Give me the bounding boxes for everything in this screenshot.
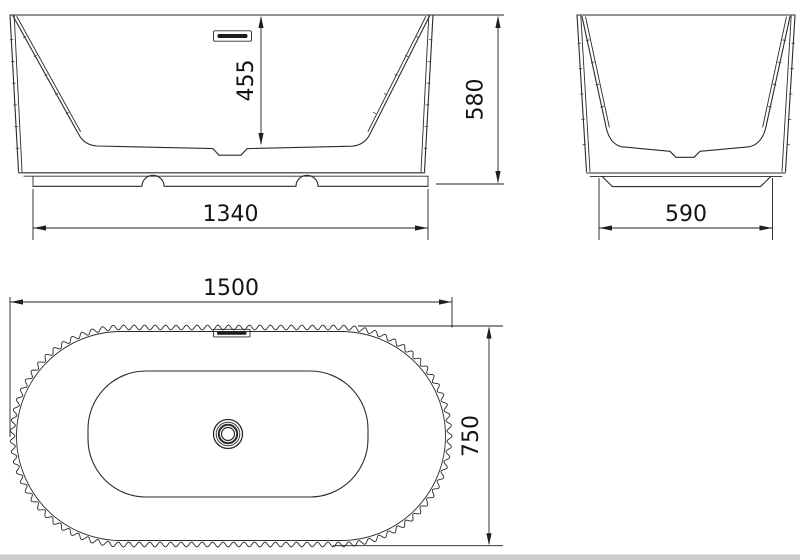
side-view: 590 [577,15,795,240]
scan-edge-strip [0,555,800,560]
arrow-right-icon [439,299,452,304]
side-plinth-outline [602,176,771,186]
side-basin-wall-line-right [763,17,787,127]
drain [214,420,243,449]
rim-inner-edge [17,332,446,541]
front-view: 455 580 1340 [10,15,504,240]
plan-overall-width-dim-label: 750 [459,415,484,457]
arrow-up-icon [495,16,500,28]
dimension-base-width-front: 1340 [33,189,428,240]
dimension-overall-length: 1500 [10,276,452,437]
dimension-base-width-side: 590 [599,178,773,240]
arrow-right-icon [415,225,428,230]
bathtub-technical-drawing: 455 580 1340 [0,0,800,560]
arrow-left-icon [600,225,613,230]
plan-overflow-bar [217,332,247,335]
front-basin-wall-line-right [368,17,426,132]
front-inner-depth-dim-label: 455 [234,60,259,102]
arrow-down-icon [486,533,491,545]
dimension-overall-height: 580 [433,15,504,184]
side-base-width-dim-label: 590 [665,202,707,227]
front-plinth-bottom-with-arches [33,175,428,186]
arrow-down-icon [495,171,500,184]
arrow-up-icon [486,326,491,338]
front-basin-wall-line-left [17,17,81,132]
side-basin-profile [582,17,790,158]
drawing-canvas: 455 580 1340 [0,0,800,560]
fluted-rim-outline [10,325,452,547]
arrow-left-icon [11,299,24,304]
side-basin-wall-line-left [586,17,610,127]
plan-view: 1500 750 [10,276,503,547]
arrow-right-icon [760,225,773,230]
dimension-overall-width: 750 [333,326,503,546]
front-overflow-bar [218,34,248,38]
flute-texture-ticks [10,36,795,148]
front-overall-height-dim-label: 580 [464,79,489,121]
arrow-up-icon [258,16,263,28]
plan-overall-length-dim-label: 1500 [203,276,259,301]
basin-opening [88,371,368,497]
front-base-width-dim-label: 1340 [203,202,259,227]
arrow-down-icon [258,133,263,145]
arrow-left-icon [34,225,47,230]
